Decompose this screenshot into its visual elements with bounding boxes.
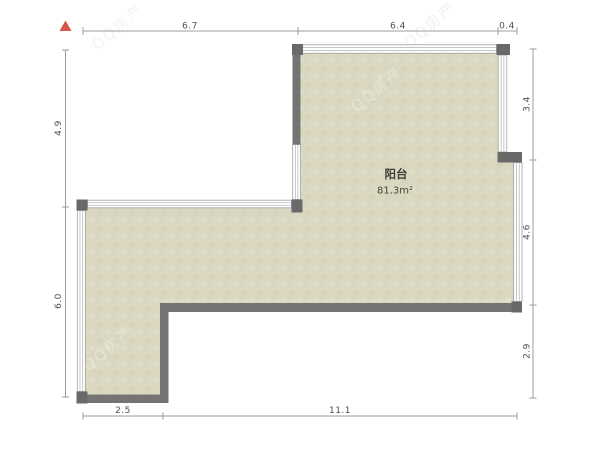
corner-bottom-left — [77, 392, 88, 404]
dimension-label-right-0: 3.4 — [523, 96, 533, 112]
window-right-lower — [514, 163, 522, 302]
dimension-label-bottom-0: 2.5 — [115, 406, 131, 416]
dimension-label-top-1: 6.4 — [390, 22, 406, 32]
wall-step-vertical — [160, 303, 169, 403]
window-top — [302, 45, 497, 53]
window-left-lower — [77, 211, 85, 392]
watermark: QQ房产 — [88, 0, 147, 53]
corner-top-left — [292, 44, 303, 55]
dimension-bottom: 2.5 11.1 — [83, 406, 517, 420]
wall-step-horizontal — [160, 303, 522, 312]
corner-lowerleft-top — [77, 200, 88, 211]
dimension-label-bottom-1: 11.1 — [329, 406, 351, 416]
dimension-label-top-2: 0.4 — [499, 22, 515, 32]
wall-left-upper — [293, 45, 301, 145]
dimension-label-right-2: 2.9 — [523, 343, 533, 359]
dimension-label-left-1: 6.0 — [54, 293, 64, 309]
corner-top-right — [497, 44, 511, 55]
window-left-upper — [293, 145, 301, 200]
corner-right-jog — [498, 152, 523, 163]
dimension-left: 4.9 6.0 — [54, 50, 69, 397]
room-name: 阳台 — [385, 167, 408, 181]
dimension-right: 3.4 4.6 2.9 — [523, 49, 537, 398]
window-right-upper — [498, 55, 507, 152]
floorplan-canvas: QQ房产 QQ房产 QQ房产 QQ房产 — [0, 0, 600, 450]
room-area: 81.3m² — [377, 186, 413, 197]
corner-inner — [292, 200, 303, 213]
dimension-top: 6.7 6.4 0.4 — [83, 22, 517, 36]
wall-bottom-left — [77, 395, 168, 404]
dimension-label-left-0: 4.9 — [54, 120, 64, 136]
north-arrow-icon — [60, 21, 72, 32]
corner-bottom-right — [512, 302, 523, 313]
floorplan-page: QQ房产 QQ房产 QQ房产 QQ房产 — [0, 0, 600, 450]
window-lower-left-top — [88, 200, 292, 208]
dimension-label-right-1: 4.6 — [523, 224, 533, 240]
dimension-label-top-0: 6.7 — [182, 22, 198, 32]
watermark: QQ房产 — [400, 0, 459, 52]
